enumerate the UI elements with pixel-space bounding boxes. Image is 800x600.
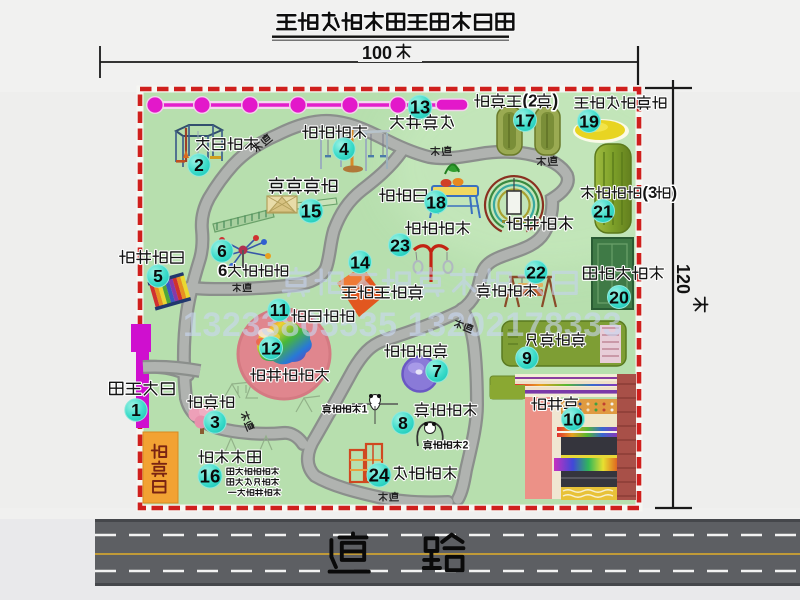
svg-text:17: 17 (515, 110, 535, 130)
svg-text:11: 11 (270, 300, 289, 320)
svg-text:24: 24 (369, 465, 390, 486)
svg-text:2: 2 (194, 155, 204, 175)
svg-text:): ) (672, 183, 678, 202)
svg-text:(3: (3 (642, 183, 657, 202)
svg-text:15: 15 (301, 201, 322, 222)
svg-text:6: 6 (217, 241, 227, 261)
svg-text:19: 19 (579, 111, 599, 131)
svg-text:9: 9 (522, 348, 532, 368)
svg-text:5: 5 (153, 266, 163, 286)
svg-text:120: 120 (673, 264, 693, 294)
svg-text:8: 8 (398, 413, 408, 433)
svg-text:20: 20 (609, 287, 629, 307)
svg-text:18: 18 (426, 192, 446, 212)
svg-text:16: 16 (200, 466, 221, 487)
svg-text:21: 21 (593, 201, 613, 221)
svg-text:22: 22 (526, 262, 546, 282)
svg-text:3: 3 (210, 412, 220, 432)
svg-text:100: 100 (362, 43, 392, 63)
svg-text:13: 13 (410, 97, 430, 118)
svg-text:1: 1 (131, 400, 141, 420)
svg-text:6: 6 (218, 261, 227, 280)
svg-text:14: 14 (350, 252, 370, 272)
svg-text:7: 7 (432, 361, 442, 381)
svg-text:(2: (2 (522, 91, 537, 111)
svg-text:10: 10 (563, 409, 583, 429)
svg-text:12: 12 (261, 338, 281, 358)
svg-text:23: 23 (390, 235, 410, 255)
svg-text:2: 2 (463, 439, 469, 451)
svg-text:1: 1 (362, 403, 368, 415)
svg-text:): ) (552, 91, 558, 111)
svg-text:4: 4 (339, 139, 349, 159)
